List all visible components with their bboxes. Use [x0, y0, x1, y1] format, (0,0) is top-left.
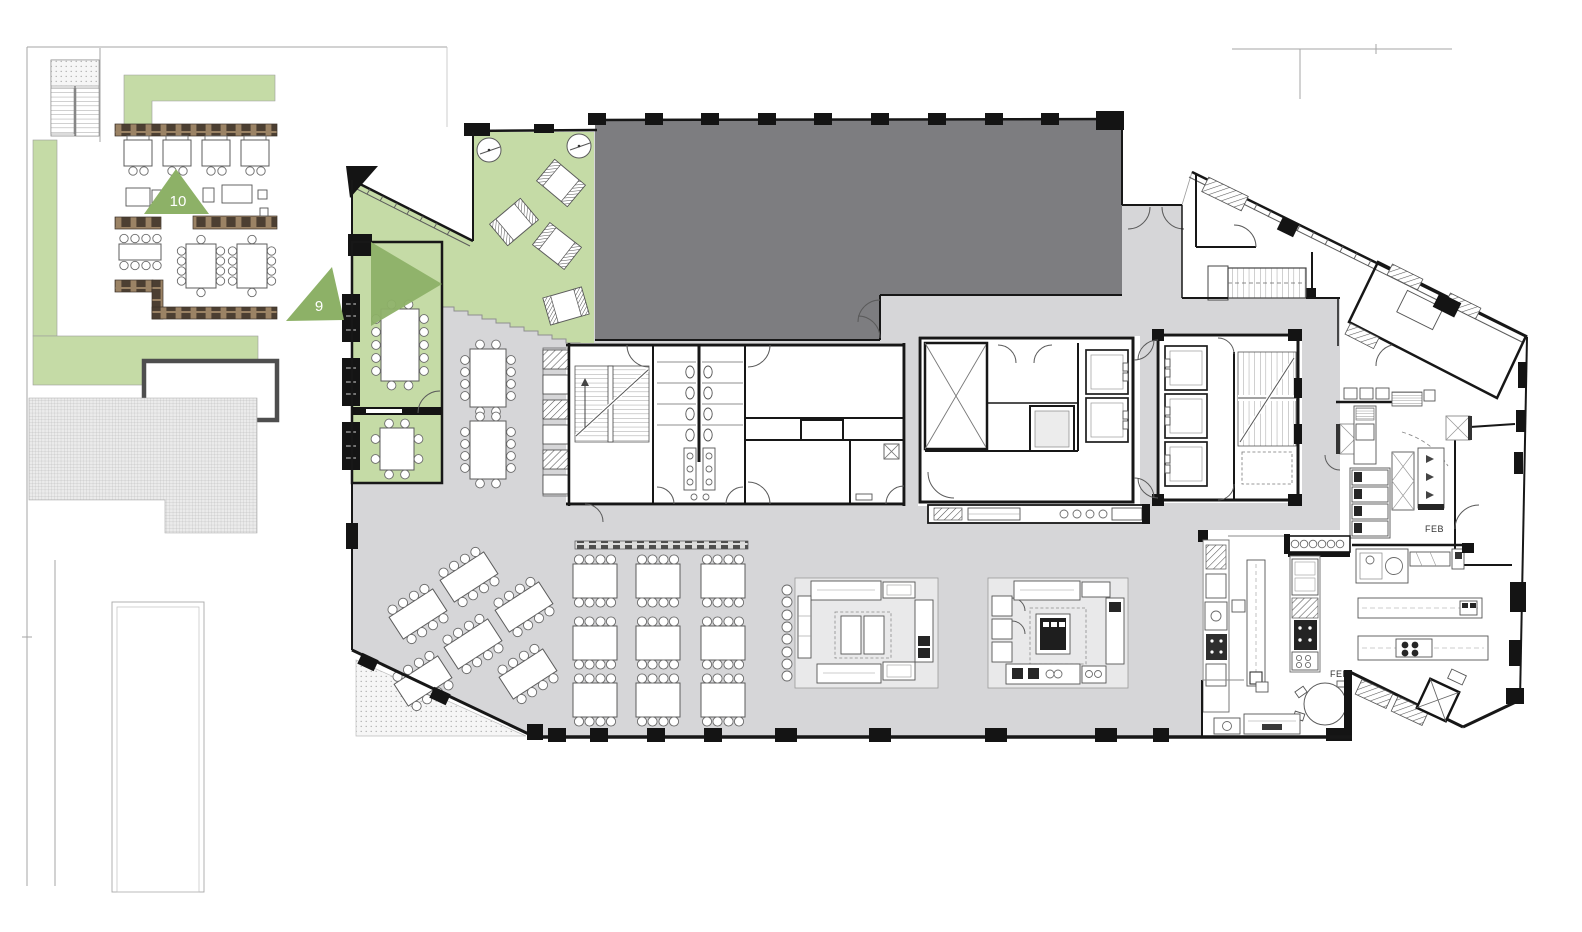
wing-stair: [1208, 266, 1306, 300]
servery-island-2: [988, 578, 1128, 688]
marker-10-label: 10: [170, 193, 187, 210]
floor-plan-page: FEB: [0, 0, 1582, 932]
walkway-outline: [112, 602, 204, 892]
core-elevators: [918, 329, 1302, 524]
electrical-closet: [1030, 406, 1074, 451]
elevator-car: [1165, 394, 1207, 438]
paving-grate: [29, 398, 257, 533]
marker-9-label: 9: [315, 298, 323, 315]
drawer-cabinet: [1418, 448, 1444, 510]
cooking-battery: [1350, 468, 1390, 538]
floor-plan-canvas: FEB: [0, 0, 1582, 932]
banquette-bench: [575, 541, 748, 549]
coffee-counter: [928, 504, 1150, 524]
core-restrooms-stair: [543, 343, 906, 522]
room-label-feb-upper: FEB: [1425, 524, 1444, 534]
elevator-car: [1086, 350, 1128, 394]
elevator-car: [1165, 346, 1207, 390]
kitchen-cook-line: [1290, 556, 1320, 672]
banquet-table-grid: [573, 555, 745, 726]
servery-island-1: [782, 578, 938, 688]
stair-core2: [1238, 352, 1296, 484]
elevator-car: [1165, 442, 1207, 486]
building: FEB: [342, 111, 1527, 742]
kitchen-center-table: [1247, 560, 1265, 686]
elevator-car: [1086, 398, 1128, 442]
exterior-stair: [51, 48, 100, 142]
